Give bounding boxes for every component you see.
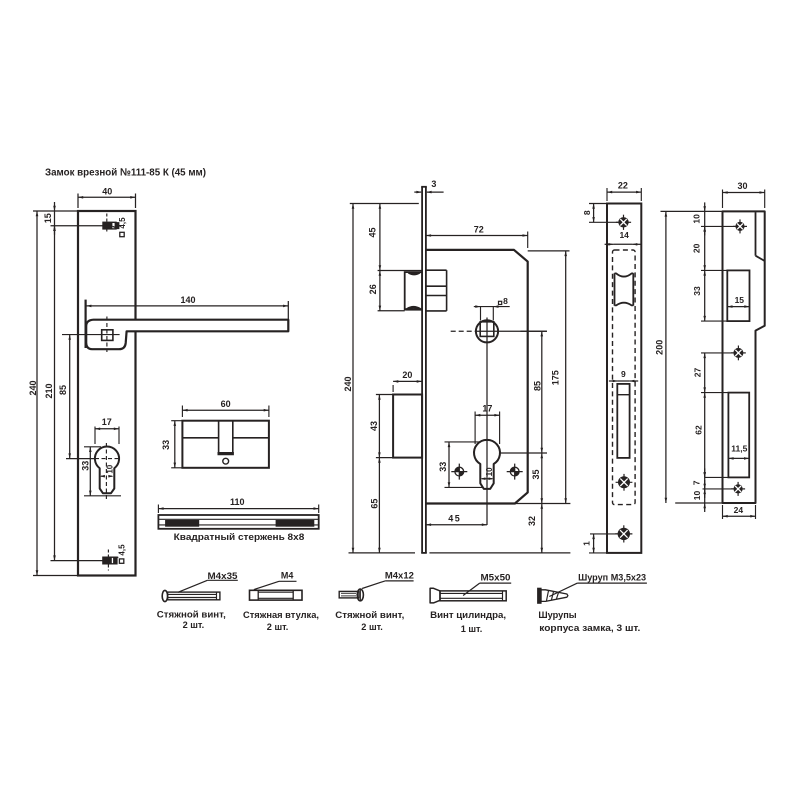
svg-text:200: 200 [655, 340, 665, 355]
svg-text:24: 24 [734, 505, 744, 515]
svg-text:15: 15 [43, 213, 53, 223]
svg-text:210: 210 [44, 383, 54, 398]
svg-text:43: 43 [369, 421, 379, 431]
svg-text:30: 30 [737, 181, 747, 191]
svg-text:110: 110 [230, 497, 245, 507]
svg-text:Стяжной винт,: Стяжной винт, [157, 610, 226, 620]
svg-text:40: 40 [102, 186, 112, 196]
svg-text:14: 14 [619, 230, 629, 240]
svg-text:Квадратный стержень 8х8: Квадратный стержень 8х8 [174, 532, 305, 542]
svg-text:72: 72 [474, 225, 484, 235]
svg-text:7: 7 [691, 480, 701, 485]
svg-text:Шуруп М3,5х23: Шуруп М3,5х23 [578, 573, 646, 583]
svg-text:33: 33 [81, 461, 91, 471]
svg-text:20: 20 [402, 370, 412, 380]
svg-text:9: 9 [621, 369, 626, 379]
svg-text:1: 1 [582, 541, 592, 546]
svg-text:26: 26 [368, 284, 378, 294]
svg-text:1 шт.: 1 шт. [461, 624, 483, 634]
svg-text:10: 10 [692, 214, 702, 224]
svg-text:240: 240 [28, 380, 38, 395]
svg-text:20: 20 [692, 243, 702, 253]
svg-text:M5х50: M5х50 [481, 573, 511, 583]
svg-text:33: 33 [161, 440, 171, 450]
svg-text:240: 240 [343, 376, 353, 391]
svg-text:2 шт.: 2 шт. [361, 622, 383, 632]
svg-text:M4х35: M4х35 [208, 571, 238, 581]
svg-text:11,5: 11,5 [731, 443, 747, 453]
svg-text:65: 65 [370, 499, 380, 509]
svg-text:15: 15 [735, 295, 745, 305]
svg-text:M4: M4 [281, 571, 294, 581]
svg-text:8: 8 [503, 296, 508, 306]
svg-text:140: 140 [180, 295, 195, 305]
svg-text:Шурупы: Шурупы [538, 610, 576, 620]
svg-text:33: 33 [438, 462, 448, 472]
svg-text:22: 22 [618, 180, 628, 190]
svg-text:62: 62 [693, 425, 703, 435]
svg-text:10: 10 [692, 491, 702, 501]
svg-text:4,5: 4,5 [118, 544, 127, 556]
svg-text:35: 35 [531, 469, 541, 479]
svg-text:4,5: 4,5 [118, 217, 127, 229]
svg-text:32: 32 [527, 516, 537, 526]
svg-text:10: 10 [106, 464, 115, 473]
svg-text:27: 27 [693, 368, 703, 378]
svg-text:85: 85 [58, 385, 68, 395]
svg-text:Стяжной винт,: Стяжной винт, [335, 610, 404, 620]
svg-text:2 шт.: 2 шт. [183, 620, 205, 630]
svg-text:Замок врезной №111-85 К (45 мм: Замок врезной №111-85 К (45 мм) [45, 167, 206, 179]
svg-text:M4х12: M4х12 [385, 571, 414, 581]
svg-text:45: 45 [368, 227, 378, 237]
svg-text:8: 8 [582, 210, 592, 215]
svg-text:175: 175 [551, 370, 561, 385]
svg-text:85: 85 [533, 381, 543, 391]
svg-text:Винт цилиндра,: Винт цилиндра, [430, 610, 506, 620]
svg-text:60: 60 [221, 399, 231, 409]
svg-text:17: 17 [482, 404, 492, 414]
svg-text:3: 3 [431, 179, 436, 189]
svg-text:33: 33 [692, 286, 702, 296]
svg-text:Стяжная втулка,: Стяжная втулка, [243, 610, 319, 620]
svg-text:10: 10 [485, 467, 494, 476]
svg-text:2 шт.: 2 шт. [267, 622, 289, 632]
svg-text:45: 45 [448, 513, 461, 523]
svg-text:корпуса замка, 3 шт.: корпуса замка, 3 шт. [539, 623, 640, 633]
svg-text:17: 17 [102, 417, 112, 427]
